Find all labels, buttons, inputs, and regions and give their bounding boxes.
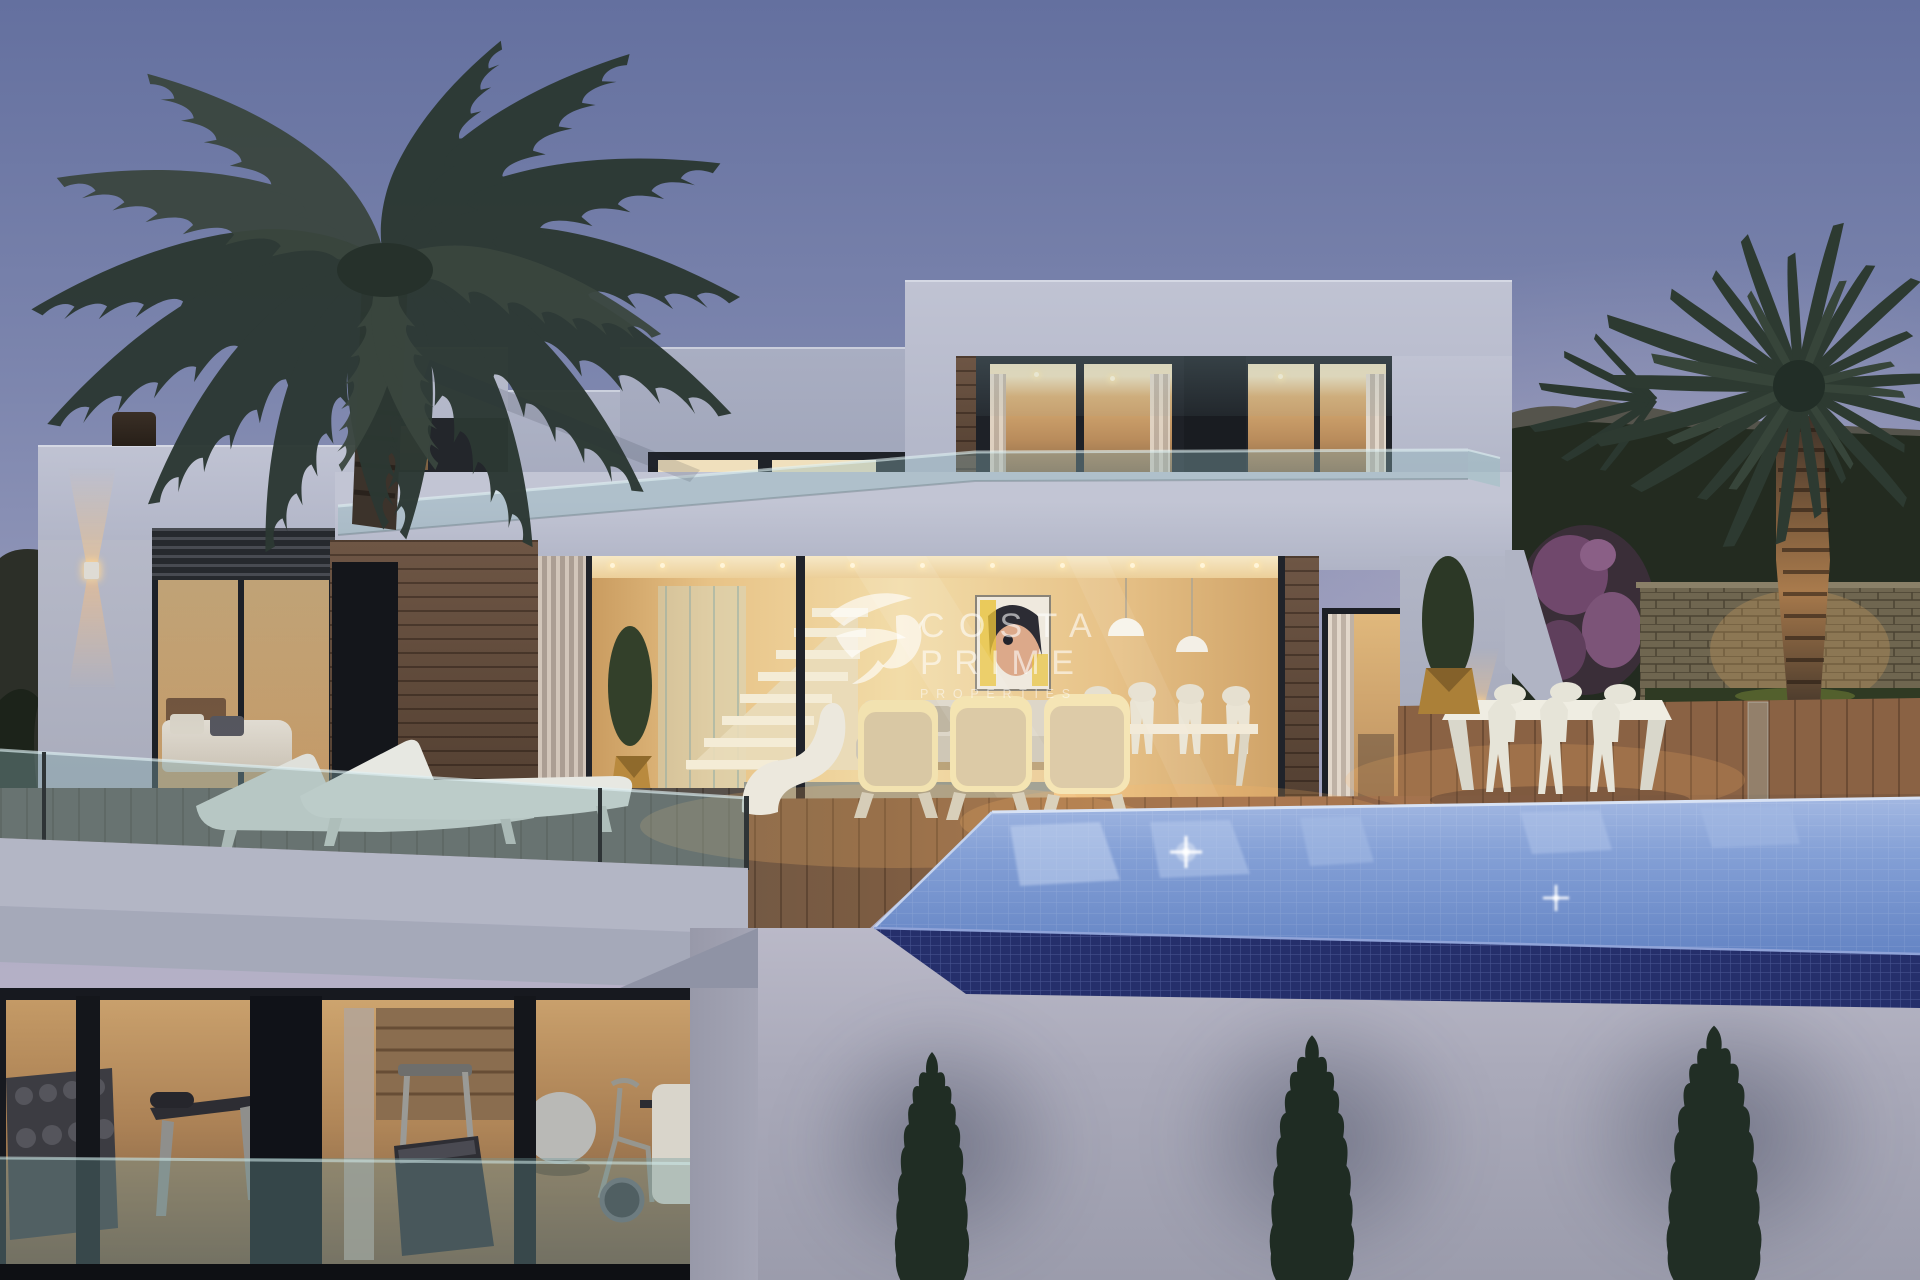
brand-line-1: COSTA [920, 608, 1106, 645]
watermark-text: COSTA PRIME PROPERTIES [920, 608, 1106, 701]
cypress-tree [895, 1052, 969, 1280]
brand-line-2: PRIME [920, 645, 1106, 682]
cypress-tree [1667, 1026, 1762, 1280]
cypress-tree [1270, 1035, 1355, 1280]
watermark: COSTA PRIME PROPERTIES [824, 582, 1144, 712]
hummingbird-icon [824, 586, 924, 690]
villa-dusk-render: COSTA PRIME PROPERTIES [0, 0, 1920, 1280]
brand-line-3: PROPERTIES [920, 687, 1106, 701]
